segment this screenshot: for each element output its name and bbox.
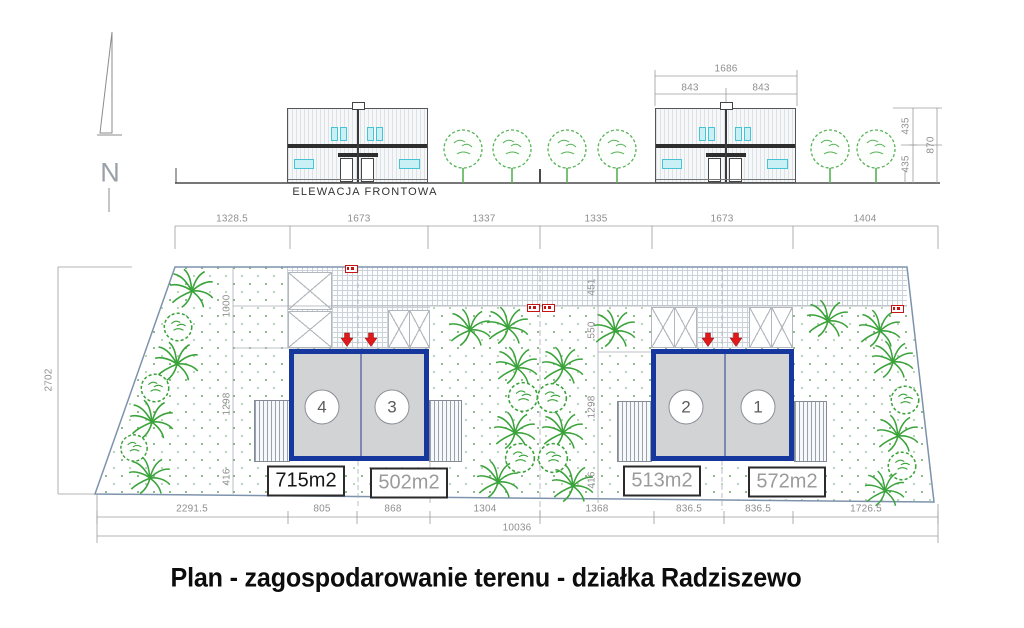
tree-icon [811,130,849,183]
dim-label: 1673 [710,214,733,225]
dim-label: 1304 [473,504,496,515]
unit-number-badge: 3 [375,390,410,425]
unit-number-badge: 2 [669,390,704,425]
utility-marker-icon [345,265,358,273]
dim-label-total: 10036 [503,523,532,534]
dim-label: 868 [384,504,401,515]
palm-tree-icon [542,347,583,383]
unit-number: 1 [753,397,762,417]
dim-label: 1726.5 [850,504,882,515]
unit-number: 3 [387,397,396,417]
drawing-title: Plan - zagospodarowanie terenu - działka… [171,563,802,594]
bush-icon [141,374,169,402]
site-plan-drawing: 4 3 2 1 715m2 502m2 513m2 572m2 [0,0,1024,628]
party-wall-line [357,109,359,182]
dim-label: 435 [901,155,912,172]
dim-label: 1328.5 [216,214,248,225]
utility-marker-icon [891,305,904,313]
dim-label: 1298 [222,392,233,415]
bush-icon [506,444,535,473]
plot-area-label: 502m2 [370,468,448,499]
lower-window [399,159,420,169]
bush-icon [509,383,538,412]
dim-label: 1337 [472,214,495,225]
elevation-building-right [655,108,796,183]
dim-label: 416 [222,468,233,485]
upper-window [735,127,751,141]
dim-label: 1686 [714,64,737,75]
entrance-arrow-icon [702,333,714,347]
tree-icon [548,130,586,183]
party-wall-line [724,354,726,456]
elevation-building-left [287,108,428,183]
dim-label: 1000 [222,294,233,317]
bush-icon [538,384,567,413]
dim-label: 805 [313,504,330,515]
lower-window [767,159,788,169]
dim-label: 1335 [584,214,607,225]
plinth-line [288,179,427,180]
entrance-arrows [341,333,742,347]
bush-icon [164,313,192,341]
dim-label: 2702 [44,368,55,391]
drawing-linework [0,0,1024,628]
north-letter: N [100,158,120,189]
unit-number-badge: 1 [741,390,776,425]
palm-tree-icon [155,342,198,380]
utility-marker-icon [527,304,540,312]
dim-label: 870 [926,136,937,153]
dim-label: 836.5 [745,504,771,515]
palm-tree-icon [542,412,583,448]
unit-number: 4 [317,397,326,417]
dim-label: 1404 [853,214,876,225]
bush-icon [891,386,919,414]
entrance-arrow-icon [730,333,742,347]
palm-tree-icon [877,415,918,451]
plot-area-label: 572m2 [748,467,826,498]
bush-icon [539,444,568,473]
dim-label: 416 [587,471,598,488]
plot-area-label: 715m2 [267,466,345,497]
dim-label: 451 [587,278,598,295]
elevation-caption: ELEWACJA FRONTOWA [292,186,437,198]
dim-label: 836.5 [676,504,702,515]
palm-tree-icon [449,309,490,345]
upper-window [331,127,347,141]
palm-tree-icon [872,341,913,377]
tree-icon [444,130,482,183]
party-wall-line [360,354,362,456]
palm-tree-icon [129,457,170,493]
tree-icon [493,130,531,183]
palm-tree-icon [494,412,535,448]
dim-label: 1298 [587,395,598,418]
dim-label: 843 [752,83,769,94]
lower-window [662,159,682,169]
tree-icon [598,130,636,183]
utility-marker-icon [542,304,555,312]
plot-area-label: 513m2 [623,466,701,497]
lower-window [294,159,314,169]
palm-tree-icon [594,310,635,346]
dim-label: 2291.5 [176,504,208,515]
dim-label: 1673 [347,214,370,225]
entrance-arrow-icon [341,333,353,347]
dim-label: 550 [587,321,598,338]
unit-number: 2 [681,397,690,417]
unit-number-badge: 4 [305,390,340,425]
palm-tree-icon [170,269,213,307]
palm-tree-icon [859,310,900,346]
party-wall-line [725,109,727,182]
dim-label: 1368 [585,504,608,515]
palm-tree-icon [487,307,528,343]
entrance-arrow-icon [365,333,377,347]
tree-icon [857,130,895,183]
upper-window [699,127,715,141]
dim-label: 435 [901,117,912,134]
palm-tree-icon [130,400,173,438]
plinth-line [656,179,795,180]
upper-window [367,127,383,141]
palm-tree-icon [496,347,537,383]
dim-label: 843 [681,83,698,94]
